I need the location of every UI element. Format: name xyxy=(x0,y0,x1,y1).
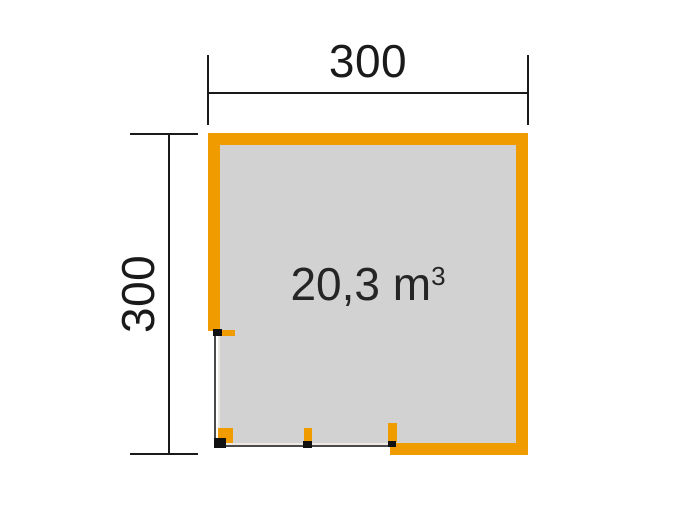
width-dimension-line xyxy=(208,92,528,94)
open-front-line-left xyxy=(214,331,216,446)
volume-value: 20,3 m xyxy=(290,258,431,310)
left-wall-end-stub xyxy=(220,330,235,336)
volume-exponent: 3 xyxy=(431,261,445,291)
depth-dimension-tick-top xyxy=(130,133,198,135)
width-dimension-tick-left xyxy=(207,55,209,125)
depth-dimension-line xyxy=(168,134,170,454)
width-dimension-label: 300 xyxy=(208,38,528,84)
wall-bottom xyxy=(390,443,528,455)
depth-dimension-tick-bottom xyxy=(130,453,198,455)
front-post-middle xyxy=(304,428,312,442)
volume-label: 20,3 m3 xyxy=(218,261,518,307)
front-post-right xyxy=(388,423,397,442)
corner-post-marker xyxy=(214,438,226,448)
floor-plan-diagram: 300 300 20,3 m3 xyxy=(0,0,700,525)
wall-top xyxy=(208,133,528,145)
depth-dimension-label: 300 xyxy=(112,134,164,454)
width-dimension-tick-right xyxy=(527,55,529,125)
front-post-right-marker xyxy=(388,441,396,447)
front-post-middle-marker xyxy=(303,441,312,448)
left-wall-end-post-marker xyxy=(213,329,222,336)
